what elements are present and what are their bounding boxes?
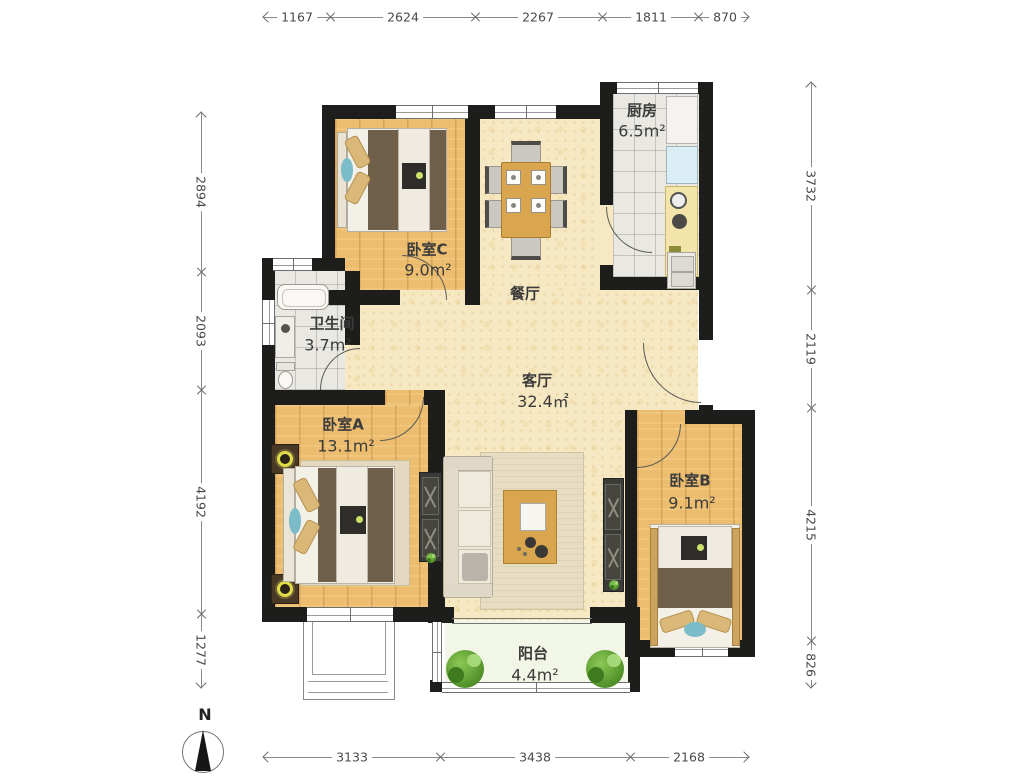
floor-plan: 厨房 6.5m² 卧室C 9.0m² 餐厅 卫生间 3.7m² 客厅 32.4㎡… xyxy=(0,0,1020,782)
room-area-bedroom-c: 9.0m² xyxy=(404,261,451,280)
cabinet-plant xyxy=(609,580,619,590)
sofa-armrest xyxy=(444,457,492,471)
balcony-left-rail xyxy=(432,622,442,682)
bathtub-inner xyxy=(282,289,326,307)
window-kitchen xyxy=(617,82,698,94)
bed-b-rail xyxy=(732,528,740,646)
cabinet-door xyxy=(605,534,621,580)
balcony-plant xyxy=(586,650,624,688)
wall-balcony-left-post xyxy=(428,607,454,623)
dim-tick xyxy=(434,751,446,763)
dim-arrow xyxy=(195,677,206,688)
dim-tick xyxy=(195,266,207,278)
dim-label: 1167 xyxy=(277,10,317,25)
room-area-kitchen: 6.5m² xyxy=(618,122,665,141)
room-label-bedroom-c: 卧室C xyxy=(406,239,447,260)
dim-tick xyxy=(469,11,481,23)
dim-label: 826 xyxy=(804,650,819,680)
dim-arrow xyxy=(262,751,273,762)
room-label-kitchen: 厨房 xyxy=(627,100,657,121)
kitchen-cabinet xyxy=(666,96,698,144)
plate xyxy=(506,198,521,213)
dim-tick xyxy=(692,11,704,23)
dim-label: 4192 xyxy=(194,483,209,521)
room-area-balcony: 4.4m² xyxy=(511,666,558,685)
dim-label: 4215 xyxy=(804,506,819,544)
sofa-armrest xyxy=(444,583,492,597)
wardrobe-door xyxy=(422,519,439,557)
dim-label: 2168 xyxy=(669,750,709,765)
dim-label: 1811 xyxy=(631,10,671,25)
compass-north-label: N xyxy=(195,705,215,724)
dim-arrow xyxy=(738,751,749,762)
room-area-bathroom: 3.7m² xyxy=(304,336,351,355)
wall-bedroom-c-left xyxy=(322,105,335,258)
dim-label: 2894 xyxy=(194,173,209,211)
room-label-bedroom-b: 卧室B xyxy=(669,470,710,491)
window-bedroom-c xyxy=(396,105,468,119)
wall-bedroom-b-left xyxy=(625,410,637,657)
dim-label: 2624 xyxy=(383,10,423,25)
sofa xyxy=(443,456,493,598)
table-decor xyxy=(525,537,536,548)
wall-bedroom-c-right xyxy=(465,105,480,305)
dim-arrow xyxy=(805,81,816,92)
dim-tick xyxy=(805,402,817,414)
table-decor xyxy=(523,552,527,556)
bed-a-teal-cushion xyxy=(289,508,301,534)
window-bedroom-a-bay xyxy=(307,607,393,622)
bedroom-a-wardrobe xyxy=(419,472,442,562)
stove-burner xyxy=(670,192,687,209)
dim-label: 3732 xyxy=(804,167,819,205)
compass-needle-icon xyxy=(195,730,211,771)
dim-arrow xyxy=(262,11,273,22)
room-label-dining: 餐厅 xyxy=(510,283,540,304)
bathtub xyxy=(277,284,329,310)
plate xyxy=(506,170,521,185)
stove-burner xyxy=(672,214,687,229)
wall-bathroom-right xyxy=(345,271,360,345)
dimension-line-top xyxy=(264,17,748,18)
sofa-back xyxy=(444,470,458,584)
wall-kitchen-bottom xyxy=(600,277,713,290)
dim-label: 2093 xyxy=(194,312,209,350)
dim-tick xyxy=(624,751,636,763)
sink-basin xyxy=(671,256,694,272)
wardrobe-door xyxy=(422,477,439,515)
dim-label: 1277 xyxy=(194,631,209,669)
toilet-tank xyxy=(276,362,295,371)
wall-bedroom-c-bottom xyxy=(322,290,400,305)
window-bathroom-top xyxy=(273,258,312,271)
bathroom-vanity xyxy=(275,316,295,358)
dim-label: 2267 xyxy=(518,10,558,25)
bedroom-b-door-opening xyxy=(637,410,685,424)
bay-window-bedroom-a xyxy=(303,620,395,700)
window-dining xyxy=(495,105,556,119)
sink-basin xyxy=(671,272,694,287)
tray xyxy=(520,503,546,531)
washbasin xyxy=(281,324,290,333)
bed-b-rail xyxy=(650,528,658,646)
dim-tick xyxy=(596,11,608,23)
bed-b-teal-cushion xyxy=(684,622,706,637)
sofa-cushion xyxy=(458,471,491,508)
bed-b-tray xyxy=(681,536,707,560)
bay-window-inner-frame xyxy=(312,621,386,675)
bed-a-tray xyxy=(340,506,366,534)
dim-tick xyxy=(195,608,207,620)
coffee-table xyxy=(503,490,557,564)
dim-label: 870 xyxy=(709,10,741,25)
lamp xyxy=(277,581,293,597)
room-label-balcony: 阳台 xyxy=(518,643,548,664)
bed-c-teal-cushion xyxy=(341,158,353,182)
dim-tick xyxy=(805,284,817,296)
balcony-plant xyxy=(446,650,484,688)
balcony-sliding-door xyxy=(452,618,592,624)
dim-label: 3133 xyxy=(332,750,372,765)
room-area-bedroom-b: 9.1m² xyxy=(668,494,715,513)
tv-cabinet xyxy=(603,478,624,592)
dim-tick xyxy=(805,635,817,647)
dim-label: 2119 xyxy=(804,330,819,368)
wall-kitchen-left-upper xyxy=(600,94,613,205)
dim-arrow xyxy=(195,111,206,122)
sofa-throw xyxy=(462,553,488,581)
plate xyxy=(531,170,546,185)
cabinet-door xyxy=(605,484,621,530)
wall-bedroom-a-top xyxy=(262,390,385,405)
table-decor xyxy=(517,547,521,551)
sofa-cushion xyxy=(458,510,491,547)
bed-b-blanket xyxy=(658,568,732,610)
room-label-bathroom: 卫生间 xyxy=(309,313,354,334)
lamp xyxy=(277,451,293,467)
fridge xyxy=(666,146,698,184)
plate xyxy=(531,198,546,213)
window-bathroom-left xyxy=(262,300,275,345)
room-area-living: 32.4㎡ xyxy=(517,388,569,412)
wall-bedroom-b-right xyxy=(742,410,755,657)
toilet-bowl xyxy=(278,371,293,389)
bay-window-sill xyxy=(308,681,388,693)
dim-tick xyxy=(195,384,207,396)
wardrobe-plant xyxy=(426,553,436,563)
room-area-bedroom-a: 13.1m² xyxy=(317,437,375,456)
room-label-bedroom-a: 卧室A xyxy=(322,414,364,435)
dim-label: 3438 xyxy=(515,750,555,765)
bed-c-tray xyxy=(402,163,426,189)
kitchen-sink xyxy=(667,252,696,289)
table-decor xyxy=(535,545,548,558)
dim-tick xyxy=(324,11,336,23)
entry-door-opening xyxy=(699,340,713,405)
